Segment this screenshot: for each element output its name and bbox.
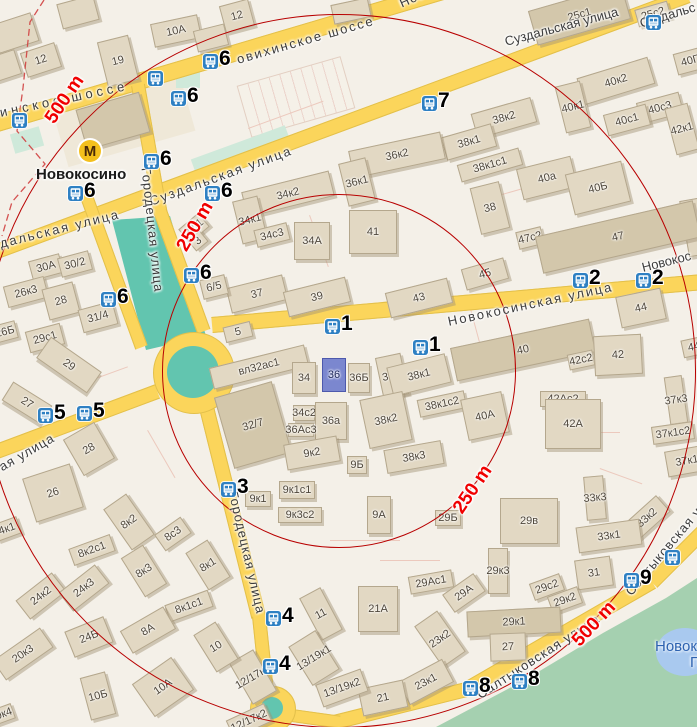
building-label: 42с2 (568, 352, 594, 369)
building: 36Ас3 (288, 423, 314, 437)
building-label: 33к3 (583, 491, 607, 505)
building: 38к3 (383, 440, 444, 474)
building-label: 38к1 (406, 366, 431, 383)
building: 20к4 (0, 703, 16, 727)
building-label: 9к3с2 (286, 509, 315, 521)
building (0, 49, 22, 85)
stop-number: 5 (93, 399, 104, 423)
building-label: 33к1 (597, 528, 622, 543)
building-label: 24к2 (28, 584, 54, 608)
building-label: 34к1 (237, 211, 262, 228)
building: 9к1с1 (279, 481, 315, 499)
building-label: 40к1 (560, 98, 585, 115)
building-label: 5 (234, 325, 243, 338)
building-label: 39 (310, 290, 325, 305)
building: 34 (292, 362, 316, 394)
bus-stop-icon[interactable] (38, 408, 53, 423)
building-label: 10А (165, 23, 187, 39)
building: 4к1 (0, 516, 22, 542)
building-label: 36к1 (344, 173, 369, 190)
bus-stop[interactable] (148, 71, 163, 86)
lawn-patch (10, 126, 44, 153)
building: 34А (294, 222, 330, 260)
building-label: 41 (367, 226, 379, 238)
building: 24к3 (58, 564, 109, 611)
stop-number: 1 (341, 312, 352, 336)
building: 42к1 (664, 103, 697, 156)
building-label: 9А (372, 509, 385, 521)
stop-number: 6 (160, 147, 171, 171)
building-label: 40А (474, 408, 496, 424)
building-label: 8к1 (198, 555, 219, 574)
building: 40к2 (577, 57, 656, 105)
building-label: 47 (611, 230, 626, 244)
stop-number: 5 (54, 401, 65, 425)
bus-stop[interactable]: 5 (77, 406, 92, 421)
building-label: 23к2 (427, 627, 453, 650)
building-label: 9Б (350, 459, 363, 471)
building: 8А (120, 606, 176, 654)
building: 9к2 (283, 436, 341, 471)
building: 8к1с1 (164, 590, 213, 623)
building-label: 36а (322, 415, 340, 427)
road (291, 709, 340, 727)
stop-number: 8 (528, 667, 539, 691)
building: 38к2 (359, 391, 412, 449)
building-label: 42к1 (669, 120, 694, 138)
bus-stop[interactable]: 6 (171, 91, 186, 106)
building-label: 40Б (587, 180, 609, 196)
bus-stop[interactable]: 3 (221, 482, 236, 497)
building (56, 0, 99, 29)
radius-label: 250 m (449, 461, 497, 518)
building: 36а (315, 402, 347, 440)
building-label: 8к3 (134, 561, 155, 580)
bus-stop-icon[interactable] (171, 91, 186, 106)
building-label: 34А (302, 235, 322, 247)
stop-number: 6 (219, 47, 230, 71)
building: 24к2 (15, 572, 66, 619)
building-label: 34к2 (275, 185, 300, 202)
building-label: 20к4 (0, 705, 14, 724)
building-label: 13/19к1 (295, 643, 334, 674)
building: 21А (358, 586, 398, 632)
building-label: 29к3 (486, 565, 509, 577)
radius-label: 250 m (172, 198, 218, 256)
building: 26Б (0, 320, 19, 344)
building: 37к3 (664, 375, 689, 425)
building: 12/17к2 (226, 703, 273, 727)
bus-stop-icon[interactable] (184, 268, 199, 283)
bus-stop-icon[interactable] (12, 113, 27, 128)
building: 26 (22, 463, 84, 522)
building-label: 27 (502, 641, 515, 653)
bus-stop[interactable]: 6 (68, 186, 83, 201)
building-label: 29 (61, 357, 78, 374)
building-label: 27 (19, 395, 36, 412)
building-label: 37к1с2 (655, 425, 691, 442)
stop-number: 6 (200, 261, 211, 285)
building: 31 (574, 556, 614, 591)
building-label: 10А (152, 676, 175, 697)
building: 37к1 (664, 445, 697, 478)
building-label: 38 (483, 201, 498, 216)
building-label: 36Б (349, 372, 368, 384)
building: 10А (132, 657, 194, 717)
footpath (330, 540, 400, 541)
building-label: 29в (520, 515, 538, 527)
building: 33к3 (583, 475, 607, 521)
building-label: 37к1 (675, 453, 697, 469)
building-label: 38к1 (456, 133, 482, 151)
building-label: 29Ас1 (415, 573, 448, 590)
building-label: 40 (516, 343, 530, 357)
bus-stop-icon[interactable] (144, 154, 159, 169)
building-label: 31/4 (86, 308, 110, 325)
building: 40 (450, 319, 596, 382)
building-label: 38к2 (373, 412, 398, 429)
lake-label-line2: П (690, 654, 697, 671)
bus-stop[interactable]: 2 (573, 273, 588, 288)
building-label: 9к1с1 (283, 484, 312, 496)
bus-stop-icon[interactable] (512, 674, 527, 689)
building-label: 38к2 (491, 109, 517, 127)
building-label: 40а (537, 170, 558, 186)
building-label: 30/2 (63, 255, 87, 272)
building: 40Б (565, 161, 631, 216)
bus-stop-icon[interactable] (203, 54, 218, 69)
building-label: 34 (298, 372, 310, 384)
building-label: 28 (81, 441, 98, 458)
bus-stop[interactable]: 6 (184, 268, 199, 283)
building-label: 38к3 (402, 449, 427, 465)
lake-label-line1: Новок (655, 638, 697, 655)
bus-stop-icon[interactable] (101, 292, 116, 307)
bus-stop[interactable]: 8 (512, 674, 527, 689)
building-label: 8с3 (162, 524, 183, 544)
building-label: 29Б (438, 512, 457, 524)
building-label: 11 (313, 606, 329, 622)
street-label: Новокос (640, 248, 692, 275)
bus-stop-icon[interactable] (205, 186, 220, 201)
building-label: 40с1 (614, 111, 640, 129)
bus-stop-icon[interactable] (646, 15, 661, 30)
stop-number: 8 (479, 674, 490, 698)
stop-number: 3 (237, 475, 248, 499)
building-label: 8к1с1 (173, 595, 204, 616)
bus-stop-icon[interactable] (68, 186, 83, 201)
building-label: 24к3 (71, 576, 97, 600)
building-label: 37 (250, 287, 265, 302)
building: 37 (226, 274, 289, 313)
building-label: 43 (412, 291, 427, 306)
building-label: 31 (587, 566, 601, 580)
building-label: 28 (54, 294, 69, 309)
bus-stop[interactable]: 7 (422, 96, 437, 111)
building: 45 (461, 257, 509, 290)
bus-stop-icon[interactable] (148, 71, 163, 86)
building: 12 (219, 0, 255, 33)
building: 40с1 (603, 104, 651, 137)
building: 29к3 (488, 548, 508, 594)
bus-stop[interactable]: 6 (144, 154, 159, 169)
map-canvas[interactable]: М Новокосино Новок П 121910А1225с125с240… (0, 0, 697, 727)
building-label: 4к1 (0, 520, 17, 537)
bus-stop[interactable]: 1 (325, 319, 340, 334)
building-label: 40к2 (603, 72, 629, 90)
building-label: 44 (634, 301, 648, 315)
stop-number: 4 (279, 652, 290, 676)
building-label: 10Б (87, 688, 109, 705)
building-label: 8к2с1 (76, 539, 107, 560)
building: 40Г (673, 46, 697, 75)
bus-stop-icon[interactable] (463, 681, 478, 696)
building-label: 44 (687, 340, 697, 354)
trolleybus-stop-icon[interactable] (636, 273, 651, 288)
bus-stop-icon[interactable] (325, 319, 340, 334)
building-label: 24Б (78, 628, 101, 646)
building-label: 8к2 (119, 512, 140, 532)
building: 41 (349, 210, 397, 254)
building: 38к1с2 (417, 390, 468, 418)
building: 38 (470, 181, 511, 235)
bus-stop-icon[interactable] (573, 273, 588, 288)
stop-number: 6 (187, 84, 198, 108)
building-label: 12 (230, 9, 245, 24)
bus-stop[interactable]: 4 (266, 611, 281, 626)
bus-stop[interactable] (665, 550, 680, 565)
building-label: 13/19к2 (322, 676, 362, 700)
stop-number: 7 (438, 89, 449, 113)
bus-stop-icon[interactable] (422, 96, 437, 111)
bus-stop-icon[interactable] (221, 482, 236, 497)
building: 24Б (64, 616, 113, 658)
building: 9к1 (245, 491, 271, 507)
building-label: 12/17к2 (229, 707, 269, 727)
building: 36Б (348, 363, 370, 393)
building: 40А (460, 391, 510, 441)
stop-number: 2 (652, 266, 663, 290)
bus-stop-icon[interactable] (665, 550, 680, 565)
bus-stop[interactable]: 5 (38, 408, 53, 423)
building-label: 40Г (680, 53, 697, 69)
building: 33к1 (576, 519, 643, 554)
building: 8к1 (185, 539, 230, 590)
bus-stop-icon[interactable] (266, 611, 281, 626)
building-label: 29А (453, 582, 476, 603)
stop-number: 4 (282, 604, 293, 628)
building-label: 26Б (0, 324, 16, 341)
stop-number: 6 (221, 179, 232, 203)
bus-stop-icon[interactable] (624, 573, 639, 588)
building-label: 32/7 (241, 416, 265, 433)
building-label: 12 (33, 52, 48, 67)
building: 37к1с2 (651, 421, 695, 445)
bus-stop[interactable]: 4 (263, 659, 278, 674)
building-label: 42А (563, 418, 583, 430)
building: 42А (545, 399, 601, 449)
building-label: 36к2 (384, 147, 409, 164)
building: 8к2с1 (68, 534, 116, 566)
building: 8с3 (154, 517, 192, 552)
metro-station-label: Новокосино (36, 166, 126, 183)
building: 9к3с2 (278, 507, 322, 523)
building: 42 (593, 334, 643, 376)
building-label: 9к1 (249, 493, 266, 505)
building-label: 23к1 (413, 671, 439, 692)
building-label: 38к1с2 (424, 395, 461, 414)
building-label: вл32ас1 (237, 356, 281, 378)
building-label: 34с3 (259, 226, 285, 243)
highlighted-building[interactable]: 36 (322, 358, 346, 392)
building-label: 19 (111, 54, 126, 69)
building-label: 38к1с1 (472, 154, 509, 175)
bus-stop[interactable]: 6 (205, 186, 220, 201)
building-label: 42 (612, 349, 625, 362)
footpath (380, 560, 440, 561)
building-label: 21 (376, 691, 390, 705)
bus-stop[interactable]: 8 (463, 681, 478, 696)
building-label: 37к3 (664, 392, 689, 407)
building: 34с2 (293, 405, 315, 421)
building-label: 36Ас3 (285, 424, 316, 436)
stop-number: 1 (429, 333, 440, 357)
building: 11 (299, 587, 343, 641)
footpath (147, 430, 175, 478)
building: 28 (41, 281, 80, 320)
bus-stop-icon[interactable] (263, 659, 278, 674)
building-label: 26 (45, 485, 60, 500)
building-label: 20к3 (10, 642, 36, 665)
building-label: 30А (35, 259, 57, 276)
bus-stop[interactable]: 1 (413, 340, 428, 355)
building: 20к3 (0, 628, 54, 681)
bus-stop[interactable] (646, 15, 661, 30)
bus-stop[interactable]: 6 (203, 54, 218, 69)
stop-number: 2 (589, 266, 600, 290)
building-label: 10 (208, 639, 225, 656)
bus-stop[interactable]: 9 (624, 573, 639, 588)
building: 29Б (435, 510, 461, 526)
building: 9А (367, 496, 391, 534)
stop-number: 9 (640, 566, 651, 590)
building-label: 21А (368, 603, 388, 615)
building-label: 9к2 (303, 446, 322, 461)
bus-stop-icon[interactable] (77, 406, 92, 421)
building-label: 26к3 (13, 283, 38, 301)
building: 29 (36, 337, 102, 394)
building: 12 (20, 42, 62, 78)
building-label: 45 (477, 267, 492, 282)
building: 10Б (80, 671, 117, 720)
building: 30/2 (57, 250, 93, 278)
building: 29в (500, 498, 558, 544)
building: 44 (680, 336, 697, 359)
building-label: 34с2 (292, 407, 316, 419)
bus-stop[interactable]: 6 (101, 292, 116, 307)
stop-number: 6 (117, 285, 128, 309)
bus-stop[interactable] (12, 113, 27, 128)
metro-station-icon[interactable]: М (79, 140, 101, 162)
bus-stop-icon[interactable] (413, 340, 428, 355)
building-label: 8А (139, 621, 157, 638)
building: 8к3 (121, 545, 167, 598)
building-label: 36 (328, 369, 340, 381)
building-label: 29к1 (502, 615, 526, 628)
footpath (600, 468, 643, 484)
building: 9Б (347, 456, 367, 474)
trolleybus-stop[interactable]: 2 (636, 273, 651, 288)
